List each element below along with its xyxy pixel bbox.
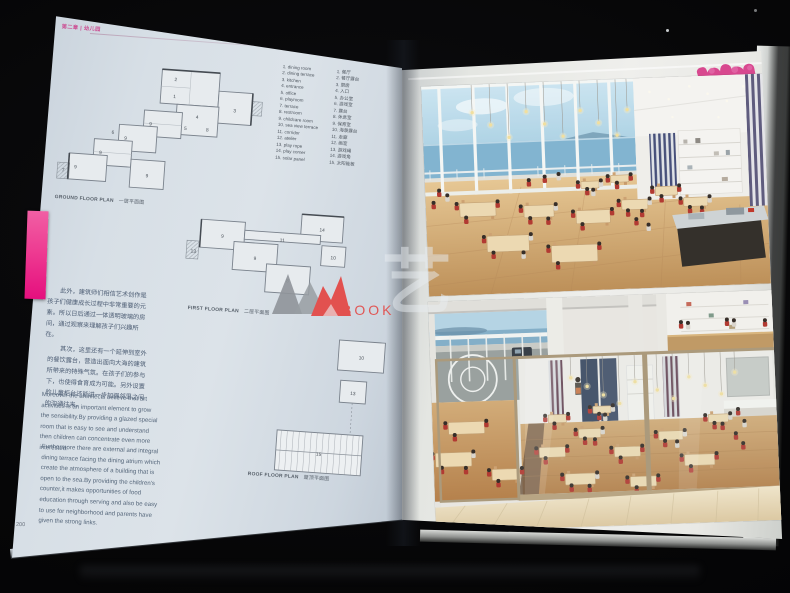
paragraph-english-2: Furthermore there are external and integ… [38,442,161,532]
roof-floor-plan-drawing: 101315 [272,332,397,488]
kitchen-island [672,205,770,267]
left-page: 第二章 | 幼儿园 [12,14,402,566]
first-floor-plan-drawing: 14991110813 [177,198,359,318]
near-dining-floor [432,400,519,502]
ground-plan-caption-en: GROUND FLOOR PLAN [55,195,114,204]
header-rule [90,33,295,49]
photo-bottom-illustration [428,290,782,532]
striped-curtain [649,133,677,188]
wall-shelving [678,128,742,194]
svg-text:15: 15 [316,452,322,458]
svg-text:6: 6 [111,130,114,136]
svg-text:14: 14 [319,227,325,233]
svg-text:10: 10 [358,355,364,361]
photo-backdrop: 第二章 | 幼儿园 [0,0,790,593]
right-page [402,44,784,546]
first-plan-caption-zh: 二层平面图 [244,310,270,317]
chapter-bookmark-tab [24,211,48,300]
legend-item: 15. 太阳能板 [329,159,355,168]
chapter-header: 第二章 | 幼儿园 [61,23,100,33]
paragraph-chinese-1: 此外，建筑师们相信艺术创作是孩子们健康成长过程中非常重要的元素。所以日后通过一体… [45,286,150,346]
ground-plan-caption-zh: 一层平面图 [119,199,145,206]
ground-floor-plan-drawing: 2134989699957 [50,58,274,213]
mezzanine-balcony [656,290,776,353]
dust-speck [666,29,669,32]
photo-dining-hall-sea-view [421,74,771,297]
legend-english: 1. dining room2. dining terrace3. kitche… [275,64,323,164]
svg-text:13: 13 [350,391,356,397]
first-plan-caption-en: FIRST FLOOR PLAN [188,306,239,314]
svg-text:13: 13 [190,249,196,255]
dust-speck [754,9,757,12]
photo-top-illustration [421,74,771,297]
page-number: 200 [16,522,25,528]
legend-chinese: 1. 餐厅2. 餐厅露台3. 厨房4. 入口5. 办公室6. 游戏室7. 露台8… [329,69,363,168]
photo-mezzanine-glass-view [428,290,782,532]
svg-text:10: 10 [330,255,336,261]
svg-text:11: 11 [280,238,286,244]
table-reflection [80,566,700,582]
